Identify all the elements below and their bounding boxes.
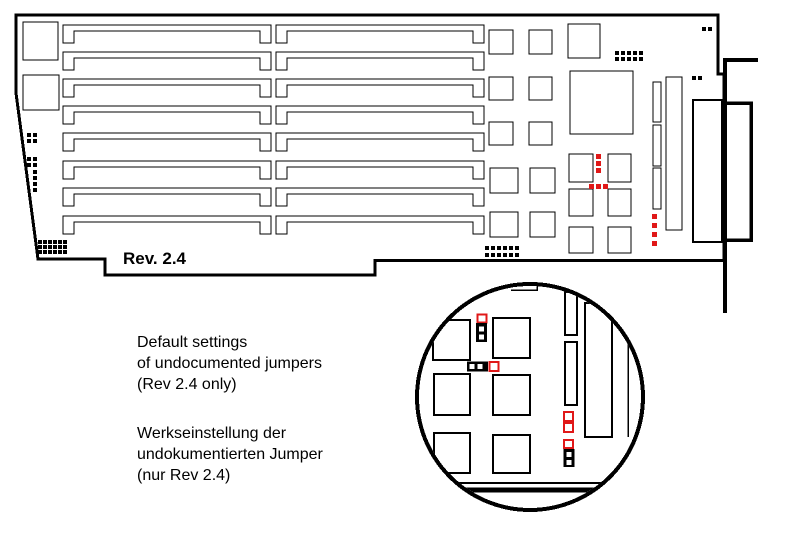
board-diagram-svg — [0, 0, 800, 533]
rev-label: Rev. 2.4 — [123, 250, 186, 268]
magnifier — [417, 284, 643, 510]
pin-header-strips — [653, 77, 682, 230]
right-column-5pin-jumper — [564, 412, 575, 467]
caption-english-line1: Default settings — [137, 332, 322, 353]
horizontal-3pin-jumper — [467, 362, 499, 372]
caption-english-line3: (Rev 2.4 only) — [137, 374, 322, 395]
pcb-jumper-diagram: Rev. 2.4 Default settings of undocumente… — [0, 0, 800, 533]
caption-german-line2: undokumentierten Jumper — [137, 444, 323, 465]
rear-connector — [693, 100, 751, 242]
caption-english: Default settings of undocumented jumpers… — [137, 332, 322, 395]
caption-german: Werkseinstellung der undokumentierten Ju… — [137, 423, 323, 486]
caption-german-line1: Werkseinstellung der — [137, 423, 323, 444]
caption-german-line3: (nur Rev 2.4) — [137, 465, 323, 486]
caption-english-line2: of undocumented jumpers — [137, 353, 322, 374]
vertical-3pin-jumper — [476, 315, 487, 343]
